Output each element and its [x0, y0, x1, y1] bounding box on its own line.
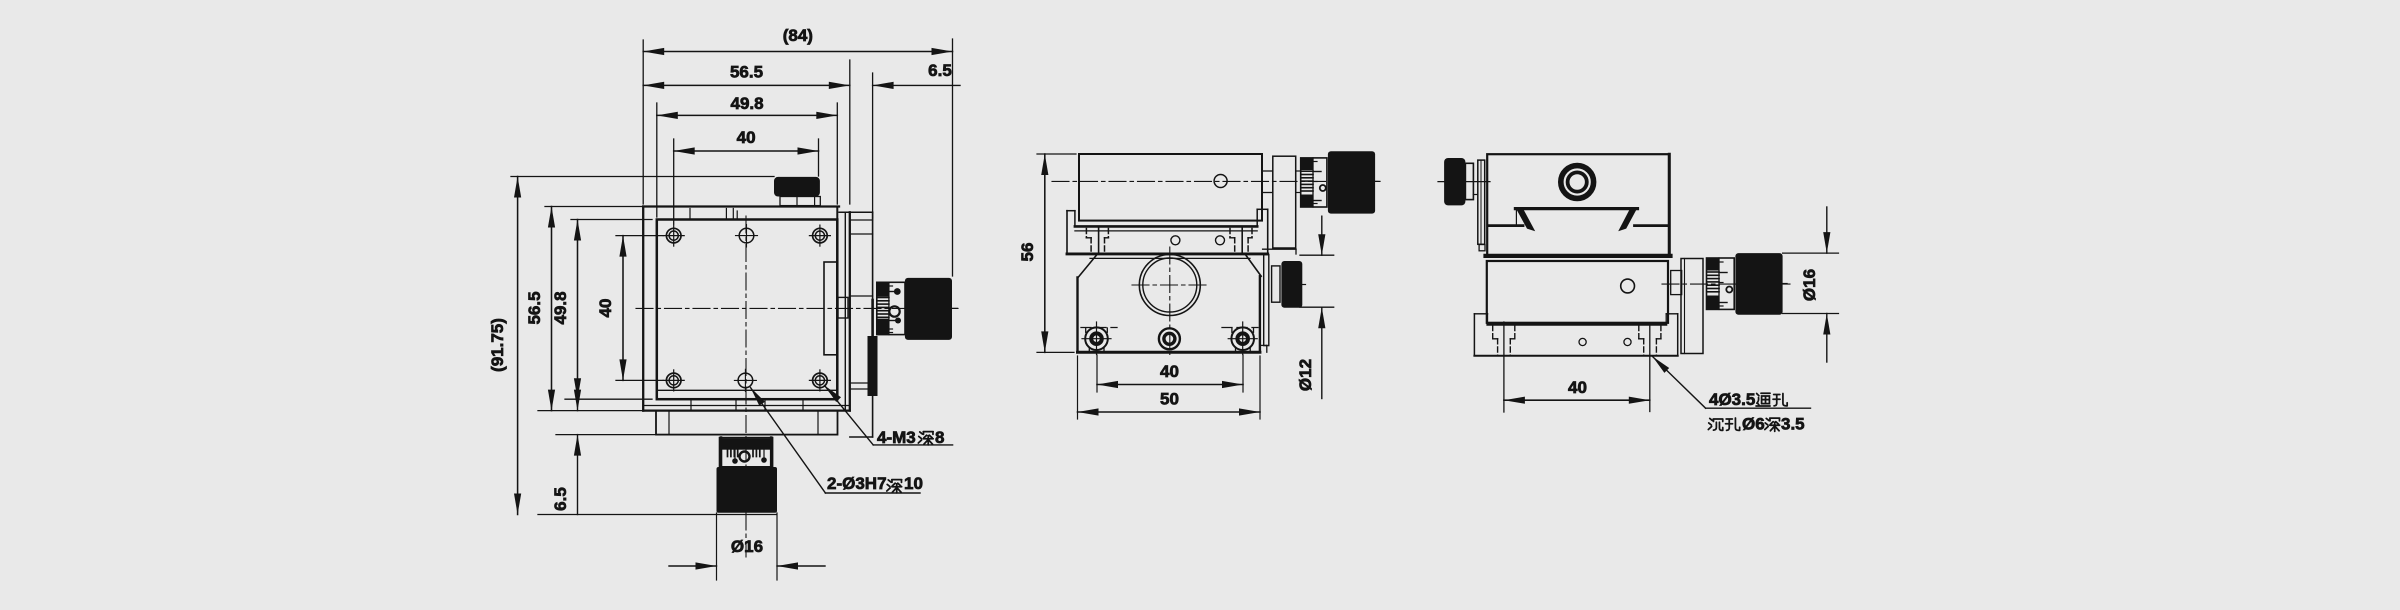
svg-text:8: 8 [935, 428, 944, 447]
svg-text:40: 40 [737, 128, 756, 147]
svg-text:6.5: 6.5 [928, 61, 952, 80]
svg-text:10: 10 [904, 474, 923, 493]
svg-text:4-M3: 4-M3 [877, 428, 916, 447]
svg-text:(91.75): (91.75) [488, 318, 507, 372]
svg-text:Ø16: Ø16 [1800, 269, 1819, 301]
svg-text:56.5: 56.5 [525, 291, 544, 324]
svg-text:3.5: 3.5 [1781, 415, 1805, 434]
svg-text:2-Ø3H7: 2-Ø3H7 [827, 474, 887, 493]
svg-text:56.5: 56.5 [730, 63, 763, 82]
svg-text:(84): (84) [783, 26, 813, 45]
svg-text:49.8: 49.8 [731, 94, 764, 113]
svg-text:40: 40 [1568, 378, 1587, 397]
svg-text:Ø6: Ø6 [1742, 415, 1765, 434]
svg-text:6.5: 6.5 [551, 487, 570, 511]
svg-text:4Ø3.5: 4Ø3.5 [1709, 390, 1755, 409]
svg-text:50: 50 [1160, 390, 1179, 409]
svg-text:56: 56 [1018, 243, 1037, 262]
svg-text:Ø12: Ø12 [1296, 359, 1315, 391]
svg-text:40: 40 [596, 299, 615, 318]
svg-text:40: 40 [1160, 362, 1179, 381]
svg-text:Ø16: Ø16 [731, 537, 763, 556]
svg-text:49.8: 49.8 [551, 291, 570, 324]
